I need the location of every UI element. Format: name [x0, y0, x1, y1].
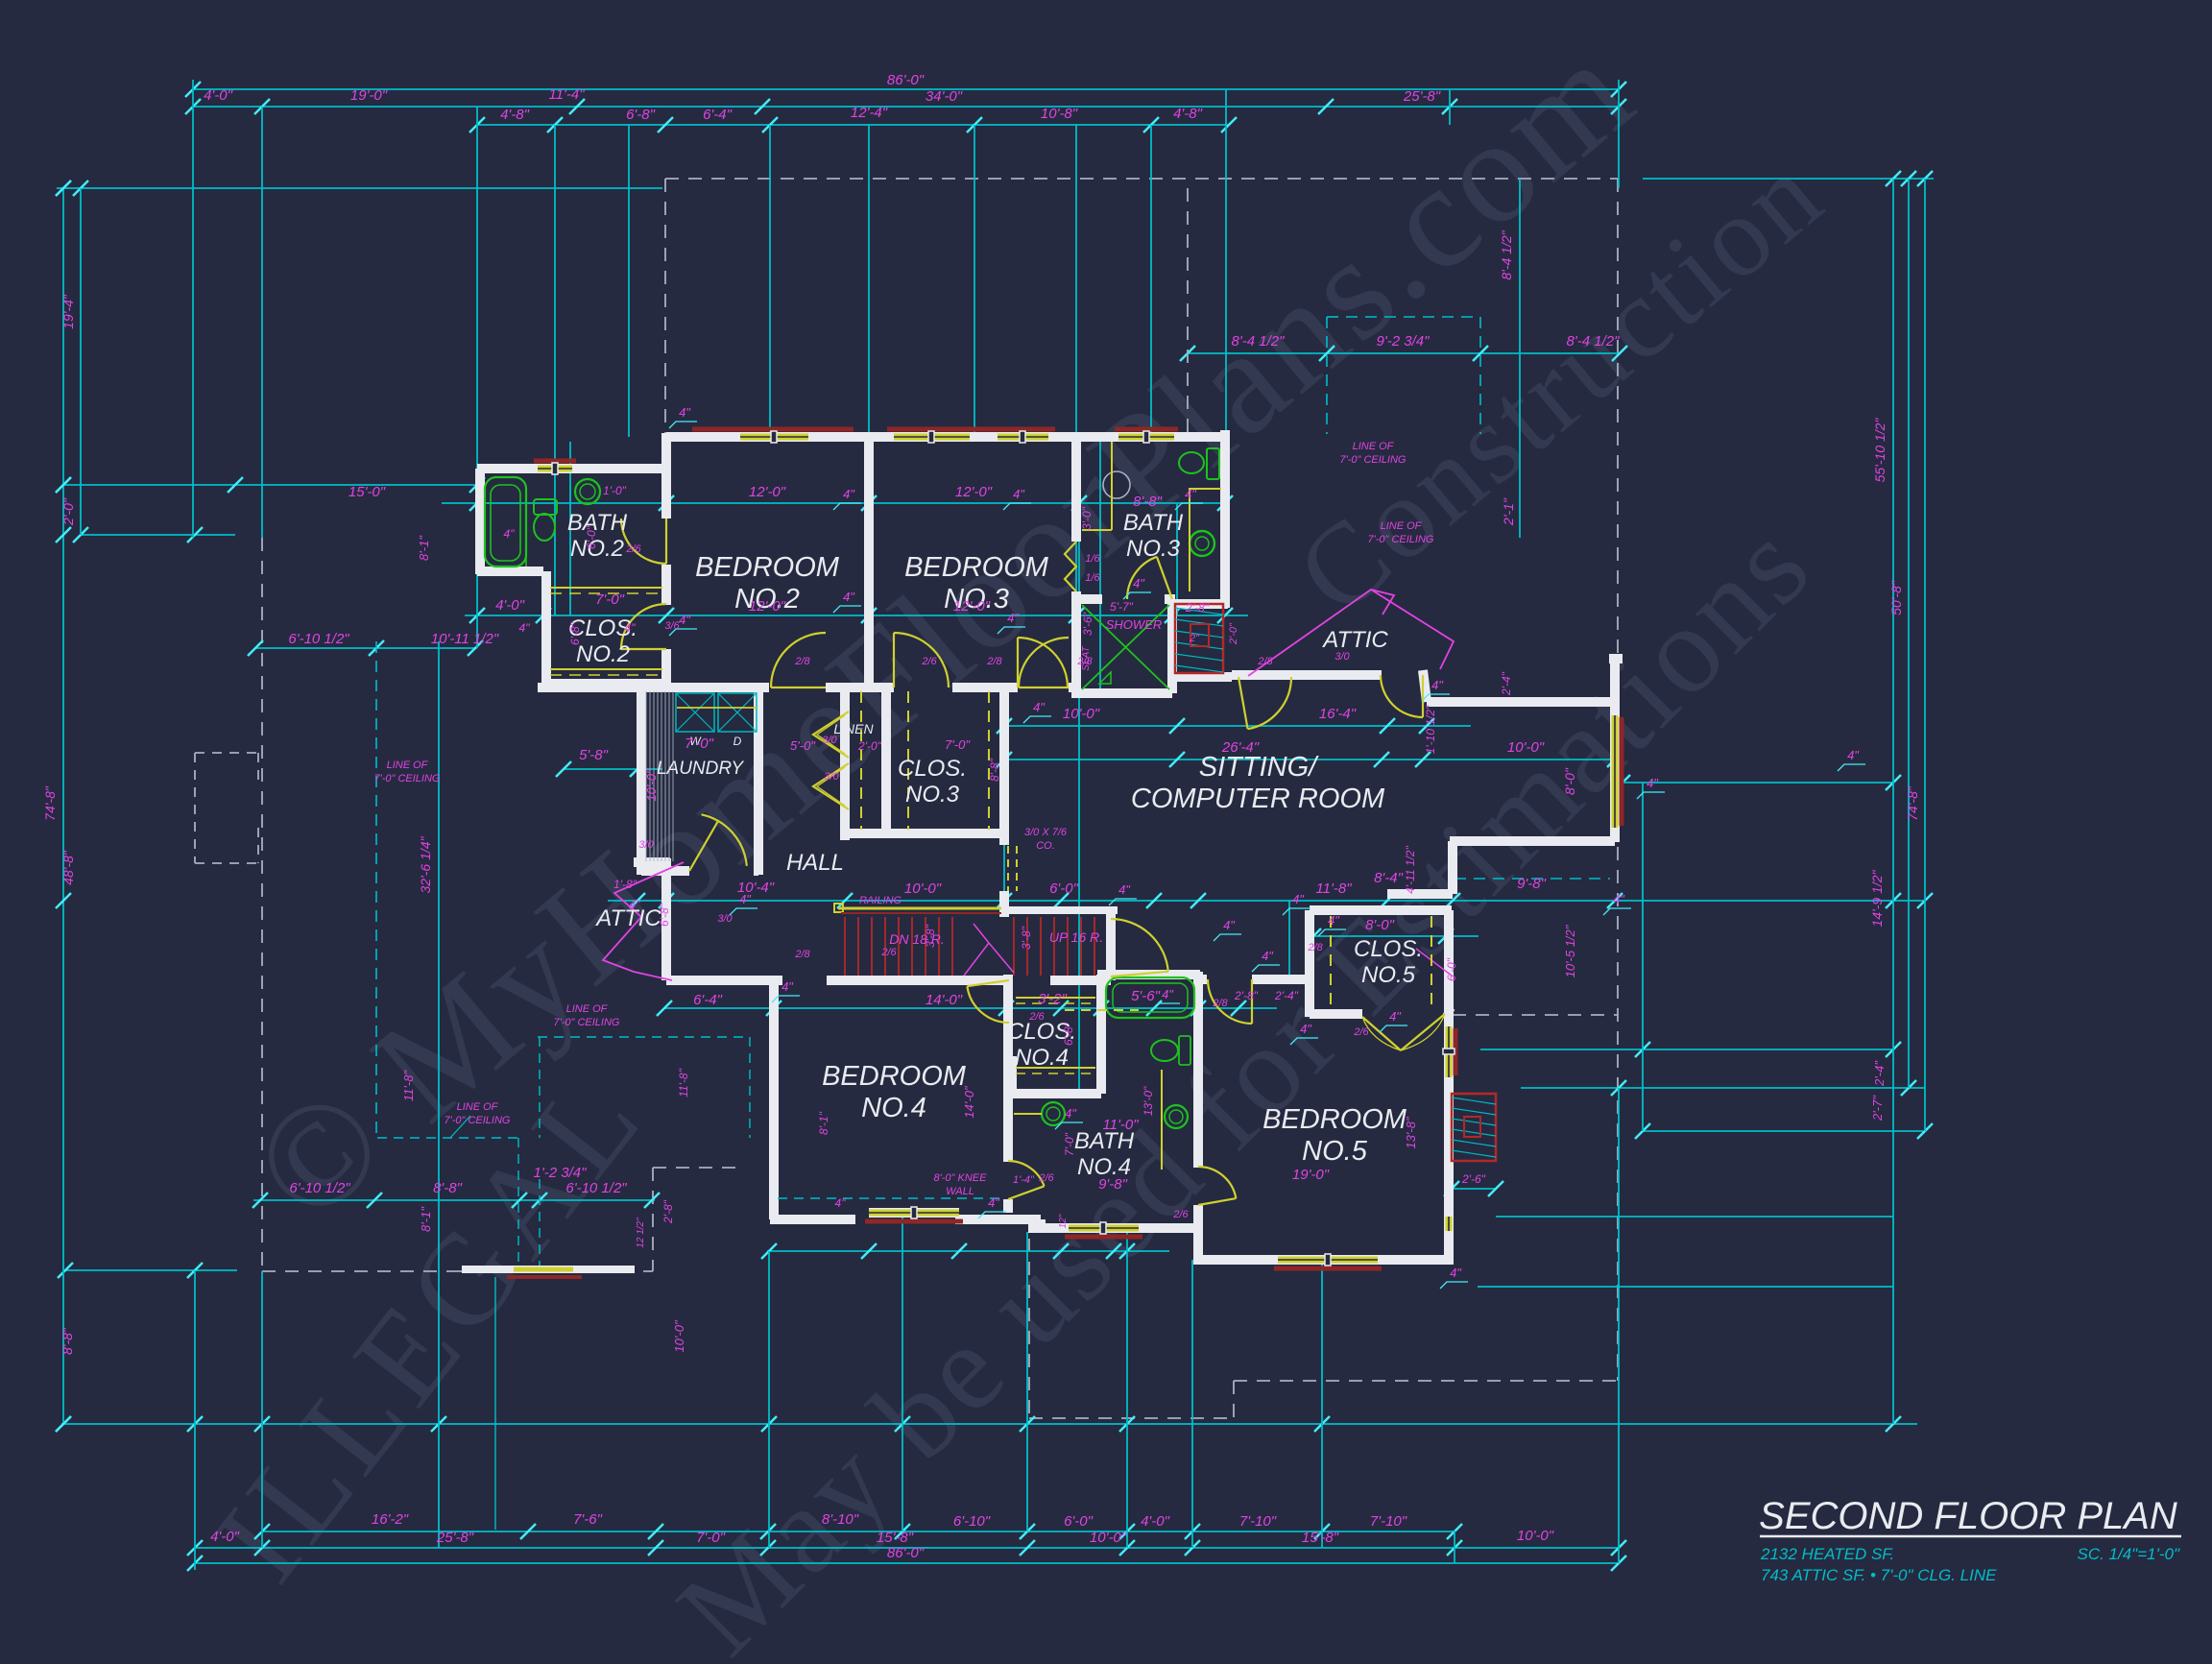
svg-text:6'-4": 6'-4"	[703, 107, 733, 123]
svg-text:19'-0": 19'-0"	[1292, 1167, 1330, 1183]
svg-text:4": 4"	[630, 898, 641, 911]
svg-text:2'-1": 2'-1"	[1501, 497, 1516, 526]
svg-text:HALL: HALL	[786, 850, 844, 876]
svg-text:12 1/2": 12 1/2"	[636, 1218, 646, 1248]
svg-text:COMPUTER ROOM: COMPUTER ROOM	[1131, 784, 1385, 814]
svg-text:15'-0": 15'-0"	[349, 484, 386, 500]
svg-text:743 ATTIC SF. • 7'-0" CLG. LIN: 743 ATTIC SF. • 7'-0" CLG. LINE	[1761, 1566, 1997, 1584]
svg-text:7'-0": 7'-0"	[685, 736, 714, 752]
svg-text:6'-8": 6'-8"	[568, 621, 582, 645]
svg-text:3/0 X 7/6: 3/0 X 7/6	[1024, 827, 1068, 838]
svg-text:4": 4"	[739, 892, 752, 906]
svg-text:14'-0": 14'-0"	[926, 992, 963, 1008]
svg-text:86'-0": 86'-0"	[887, 72, 925, 88]
svg-text:10'-0": 10'-0"	[672, 1319, 686, 1353]
svg-text:8'-8": 8'-8"	[1133, 494, 1163, 510]
svg-text:4": 4"	[1647, 776, 1659, 790]
svg-text:4": 4"	[1007, 611, 1020, 625]
svg-text:D: D	[733, 735, 742, 748]
svg-text:BEDROOM: BEDROOM	[904, 552, 1049, 583]
svg-text:19'-0": 19'-0"	[350, 87, 388, 104]
svg-text:4": 4"	[1389, 1009, 1402, 1024]
svg-text:7'-6": 7'-6"	[573, 1511, 603, 1528]
svg-text:5'-0": 5'-0"	[790, 738, 816, 753]
svg-text:WALL: WALL	[946, 1186, 974, 1197]
svg-text:2/8: 2/8	[1076, 656, 1093, 667]
svg-text:1'-0": 1'-0"	[603, 484, 627, 497]
svg-text:LINE OF: LINE OF	[1353, 441, 1395, 452]
svg-text:2132 HEATED SF.: 2132 HEATED SF.	[1760, 1545, 1894, 1563]
svg-text:LINE OF: LINE OF	[387, 760, 429, 771]
svg-text:4'-0": 4'-0"	[210, 1529, 240, 1545]
svg-text:7'-0": 7'-0"	[696, 1530, 726, 1546]
svg-text:NO.5: NO.5	[1361, 962, 1416, 988]
svg-text:2": 2"	[1189, 633, 1200, 644]
svg-text:11'-4": 11'-4"	[548, 86, 585, 103]
svg-text:8'-1": 8'-1"	[817, 1111, 830, 1135]
svg-text:2'-8": 2'-8"	[1185, 601, 1210, 615]
svg-text:15'-8": 15'-8"	[1302, 1530, 1339, 1546]
svg-text:NO.3: NO.3	[905, 782, 960, 808]
svg-text:10'-8": 10'-8"	[1041, 106, 1078, 122]
svg-text:14'-9 1/2": 14'-9 1/2"	[1869, 869, 1885, 927]
svg-text:4": 4"	[843, 487, 855, 501]
svg-text:12'-0": 12'-0"	[955, 484, 993, 500]
svg-text:NO.4: NO.4	[861, 1093, 926, 1123]
svg-text:6'-0": 6'-0"	[1064, 1513, 1094, 1530]
svg-text:2/8: 2/8	[1307, 942, 1323, 953]
svg-text:32'-6 1/4": 32'-6 1/4"	[418, 835, 433, 893]
svg-text:4'-8": 4'-8"	[500, 107, 530, 123]
svg-text:4": 4"	[835, 1196, 847, 1210]
svg-text:4": 4"	[1613, 892, 1625, 906]
svg-text:11'-8": 11'-8"	[401, 1070, 416, 1102]
svg-text:25'-8": 25'-8"	[1403, 88, 1441, 105]
svg-text:8'-4 1/2": 8'-4 1/2"	[1499, 229, 1514, 279]
svg-text:7'-0" CEILING: 7'-0" CEILING	[1340, 454, 1407, 466]
svg-text:4": 4"	[781, 979, 794, 994]
svg-text:7'-0": 7'-0"	[595, 591, 625, 608]
svg-text:4": 4"	[1065, 1106, 1077, 1121]
svg-text:3'-2": 3'-2"	[1038, 991, 1068, 1007]
svg-text:12'-0": 12'-0"	[749, 484, 786, 500]
svg-text:4": 4"	[1223, 918, 1236, 932]
svg-text:5'-7": 5'-7"	[1110, 600, 1134, 614]
svg-text:UP 16 R.: UP 16 R.	[1049, 929, 1103, 945]
svg-text:LINEN: LINEN	[833, 721, 874, 736]
svg-text:10'-0": 10'-0"	[1063, 706, 1100, 722]
svg-text:26'-4": 26'-4"	[1221, 739, 1260, 756]
svg-text:16'-2": 16'-2"	[372, 1511, 409, 1528]
svg-text:55'-10 1/2": 55'-10 1/2"	[1872, 418, 1887, 483]
svg-text:3'-8": 3'-8"	[924, 924, 937, 948]
svg-text:6'-8": 6'-8"	[1062, 1022, 1075, 1046]
svg-text:8'-0": 8'-0"	[1365, 917, 1395, 933]
svg-text:BATH: BATH	[1123, 510, 1184, 536]
svg-text:15'-8": 15'-8"	[877, 1530, 914, 1546]
svg-text:LAUNDRY: LAUNDRY	[657, 759, 744, 779]
svg-text:2'-0": 2'-0"	[1228, 622, 1239, 645]
svg-text:3/0: 3/0	[822, 735, 837, 746]
svg-text:11'-8": 11'-8"	[1315, 880, 1352, 897]
svg-text:LINE OF: LINE OF	[566, 1003, 609, 1015]
svg-text:2'-7": 2'-7"	[1870, 1095, 1885, 1121]
svg-text:1/6: 1/6	[1085, 553, 1100, 565]
svg-text:SITTING/: SITTING/	[1199, 752, 1319, 783]
svg-text:10'-0": 10'-0"	[644, 768, 659, 802]
svg-text:8'-4 1/2": 8'-4 1/2"	[1232, 333, 1286, 350]
svg-text:34'-0": 34'-0"	[926, 88, 963, 105]
svg-text:2'-8": 2'-8"	[1234, 989, 1259, 1002]
svg-text:4": 4"	[1013, 487, 1025, 501]
svg-text:ATTIC: ATTIC	[594, 905, 661, 931]
svg-text:7'-0" CEILING: 7'-0" CEILING	[554, 1017, 620, 1028]
svg-text:12'-0": 12'-0"	[953, 598, 991, 615]
svg-text:LINE OF: LINE OF	[457, 1101, 499, 1113]
svg-text:11'-8": 11'-8"	[677, 1068, 690, 1097]
svg-text:6'-8": 6'-8"	[626, 107, 656, 123]
svg-text:11'-0": 11'-0"	[1102, 1117, 1139, 1133]
svg-text:4": 4"	[1847, 748, 1860, 762]
svg-text:4": 4"	[1033, 700, 1046, 714]
svg-text:4": 4"	[1450, 1266, 1462, 1280]
svg-text:4'-0": 4'-0"	[495, 597, 525, 614]
svg-text:7'-0": 7'-0"	[945, 737, 971, 752]
svg-text:3'-0": 3'-0"	[1080, 506, 1094, 530]
svg-text:8'-8": 8'-8"	[60, 1327, 75, 1355]
svg-text:4'-0": 4'-0"	[204, 87, 233, 104]
svg-text:12": 12"	[1058, 1214, 1069, 1228]
svg-text:86'-0": 86'-0"	[887, 1545, 925, 1561]
svg-text:50'-8": 50'-8"	[1888, 580, 1904, 615]
svg-text:4": 4"	[1118, 882, 1131, 897]
svg-text:1'-10 1/2": 1'-10 1/2"	[1424, 705, 1437, 754]
svg-text:LINE OF: LINE OF	[1381, 520, 1423, 532]
svg-text:2'-0": 2'-0"	[60, 497, 76, 526]
svg-text:CO.: CO.	[1036, 840, 1055, 852]
svg-text:19'-4": 19'-4"	[60, 294, 76, 329]
svg-text:12'-0": 12'-0"	[749, 598, 786, 615]
svg-text:4'-0": 4'-0"	[1141, 1513, 1170, 1530]
svg-text:4": 4"	[1431, 678, 1444, 692]
svg-text:6'-10": 6'-10"	[953, 1513, 991, 1530]
svg-text:6'-0": 6'-0"	[1049, 880, 1079, 897]
svg-text:3/0: 3/0	[638, 839, 654, 851]
svg-text:4": 4"	[625, 621, 637, 635]
svg-text:2/6: 2/6	[921, 656, 937, 667]
svg-text:2/6: 2/6	[1353, 1026, 1369, 1038]
svg-text:4": 4"	[519, 621, 531, 635]
svg-text:ATTIC: ATTIC	[1321, 627, 1388, 653]
svg-text:3/0: 3/0	[1334, 651, 1350, 663]
svg-text:2/8: 2/8	[1257, 656, 1273, 667]
svg-text:10'-0": 10'-0"	[904, 880, 942, 897]
svg-text:6'-8": 6'-8"	[658, 903, 671, 927]
svg-text:CLOS.: CLOS.	[1354, 936, 1423, 962]
svg-text:12'-4": 12'-4"	[851, 105, 888, 121]
svg-text:8'-8": 8'-8"	[988, 758, 1001, 782]
svg-text:1'-2 3/4": 1'-2 3/4"	[534, 1165, 588, 1181]
svg-text:7'-0": 7'-0"	[1063, 1132, 1076, 1156]
svg-text:4": 4"	[843, 590, 855, 604]
svg-text:48'-8": 48'-8"	[60, 850, 76, 885]
svg-text:4": 4"	[679, 405, 691, 420]
svg-text:6'-10 1/2": 6'-10 1/2"	[565, 1180, 627, 1196]
svg-text:7'-0" CEILING: 7'-0" CEILING	[445, 1115, 511, 1126]
svg-text:5'-8": 5'-8"	[579, 747, 609, 763]
svg-text:BEDROOM: BEDROOM	[822, 1061, 967, 1092]
svg-text:6'-0": 6'-0"	[585, 525, 598, 549]
svg-text:NO.2: NO.2	[576, 641, 630, 667]
svg-text:2'-8": 2'-8"	[661, 1199, 675, 1224]
svg-text:2/6: 2/6	[880, 947, 897, 958]
svg-text:4": 4"	[504, 527, 516, 541]
svg-text:SECOND FLOOR PLAN: SECOND FLOOR PLAN	[1759, 1495, 2177, 1537]
svg-text:2/6: 2/6	[1172, 1209, 1189, 1220]
svg-text:4'-8": 4'-8"	[1173, 106, 1203, 122]
svg-text:NO.5: NO.5	[1302, 1136, 1368, 1167]
svg-text:SC. 1/4"=1'-0": SC. 1/4"=1'-0"	[2077, 1545, 2179, 1563]
svg-text:14'-0": 14'-0"	[962, 1085, 976, 1119]
svg-text:4": 4"	[1300, 1022, 1312, 1036]
svg-text:1'-8": 1'-8"	[613, 878, 637, 891]
svg-text:BEDROOM: BEDROOM	[1262, 1104, 1407, 1135]
svg-text:8'-1": 8'-1"	[417, 535, 431, 561]
svg-text:3/6: 3/6	[664, 620, 680, 632]
svg-text:4": 4"	[1262, 949, 1274, 963]
svg-text:2'-4": 2'-4"	[1500, 671, 1513, 696]
svg-text:NO.4: NO.4	[1015, 1045, 1069, 1071]
svg-text:10'-0": 10'-0"	[1517, 1528, 1554, 1544]
svg-text:4": 4"	[1292, 892, 1305, 906]
svg-text:13'-0": 13'-0"	[1142, 1086, 1155, 1116]
svg-text:2/6: 2/6	[1028, 1011, 1045, 1023]
svg-text:6'-10 1/2": 6'-10 1/2"	[289, 1180, 350, 1196]
svg-text:10'-11 1/2": 10'-11 1/2"	[431, 631, 499, 647]
svg-text:2/8: 2/8	[794, 949, 810, 960]
svg-text:7'-10": 7'-10"	[1239, 1513, 1277, 1530]
svg-text:10'-0": 10'-0"	[1507, 739, 1545, 756]
svg-text:8'-0" KNEE: 8'-0" KNEE	[934, 1172, 988, 1184]
svg-text:4": 4"	[1133, 576, 1145, 591]
svg-text:7'-10": 7'-10"	[1370, 1513, 1407, 1530]
svg-text:25'-8": 25'-8"	[436, 1530, 474, 1546]
svg-text:2'-0": 2'-0"	[857, 739, 882, 753]
svg-text:2'-4": 2'-4"	[1872, 1060, 1887, 1087]
svg-text:6'-4": 6'-4"	[693, 992, 723, 1008]
svg-text:16'-4": 16'-4"	[1319, 706, 1357, 722]
svg-text:6'-10 1/2": 6'-10 1/2"	[288, 631, 349, 647]
svg-text:8'-0": 8'-0"	[1562, 767, 1577, 795]
svg-text:10'-0": 10'-0"	[1090, 1530, 1127, 1546]
svg-text:8'-4": 8'-4"	[1374, 870, 1404, 886]
svg-text:3'-8": 3'-8"	[1020, 926, 1033, 950]
svg-text:8'-8": 8'-8"	[433, 1180, 463, 1196]
svg-text:2'-6": 2'-6"	[1461, 1172, 1486, 1186]
svg-text:2'-4": 2'-4"	[1274, 989, 1299, 1002]
svg-text:2/6: 2/6	[625, 543, 641, 555]
svg-text:4": 4"	[679, 613, 691, 627]
svg-text:8'-10": 8'-10"	[822, 1511, 859, 1528]
svg-text:SHOWER: SHOWER	[1106, 617, 1163, 632]
svg-text:2/8: 2/8	[1212, 998, 1228, 1009]
svg-text:4": 4"	[1328, 913, 1340, 928]
svg-text:10'-5 1/2": 10'-5 1/2"	[1563, 924, 1577, 977]
svg-text:2/8: 2/8	[794, 656, 810, 667]
svg-text:8'-4 1/2": 8'-4 1/2"	[1567, 333, 1621, 350]
svg-text:6'-0": 6'-0"	[1445, 957, 1458, 981]
svg-text:74'-8": 74'-8"	[1905, 785, 1920, 821]
svg-text:BEDROOM: BEDROOM	[695, 552, 840, 583]
svg-text:3'-6": 3'-6"	[1081, 612, 1094, 636]
svg-text:4": 4"	[1185, 487, 1197, 501]
svg-text:4": 4"	[1162, 987, 1174, 1001]
svg-text:74'-8": 74'-8"	[42, 785, 58, 821]
svg-text:1/6: 1/6	[1085, 572, 1100, 584]
svg-text:8'-1": 8'-1"	[419, 1206, 433, 1232]
svg-text:1'-4": 1'-4"	[1013, 1174, 1035, 1186]
svg-text:4": 4"	[988, 1195, 1000, 1210]
svg-text:13'-8": 13'-8"	[1404, 1116, 1418, 1149]
svg-text:9'-2 3/4": 9'-2 3/4"	[1377, 333, 1431, 350]
svg-text:RAILING: RAILING	[859, 895, 902, 906]
svg-text:4'-11 1/2": 4'-11 1/2"	[1404, 845, 1417, 893]
svg-text:3/0: 3/0	[824, 771, 839, 783]
svg-text:9'-8": 9'-8"	[1098, 1176, 1128, 1193]
svg-text:2/6: 2/6	[1038, 1172, 1054, 1184]
svg-text:2/8: 2/8	[986, 656, 1002, 667]
svg-text:CLOS.: CLOS.	[898, 756, 967, 782]
svg-text:7'-0" CEILING: 7'-0" CEILING	[1368, 534, 1434, 545]
svg-text:NO.3: NO.3	[1126, 536, 1181, 562]
svg-text:7'-0" CEILING: 7'-0" CEILING	[374, 773, 441, 784]
svg-text:9'-8": 9'-8"	[1517, 876, 1547, 892]
